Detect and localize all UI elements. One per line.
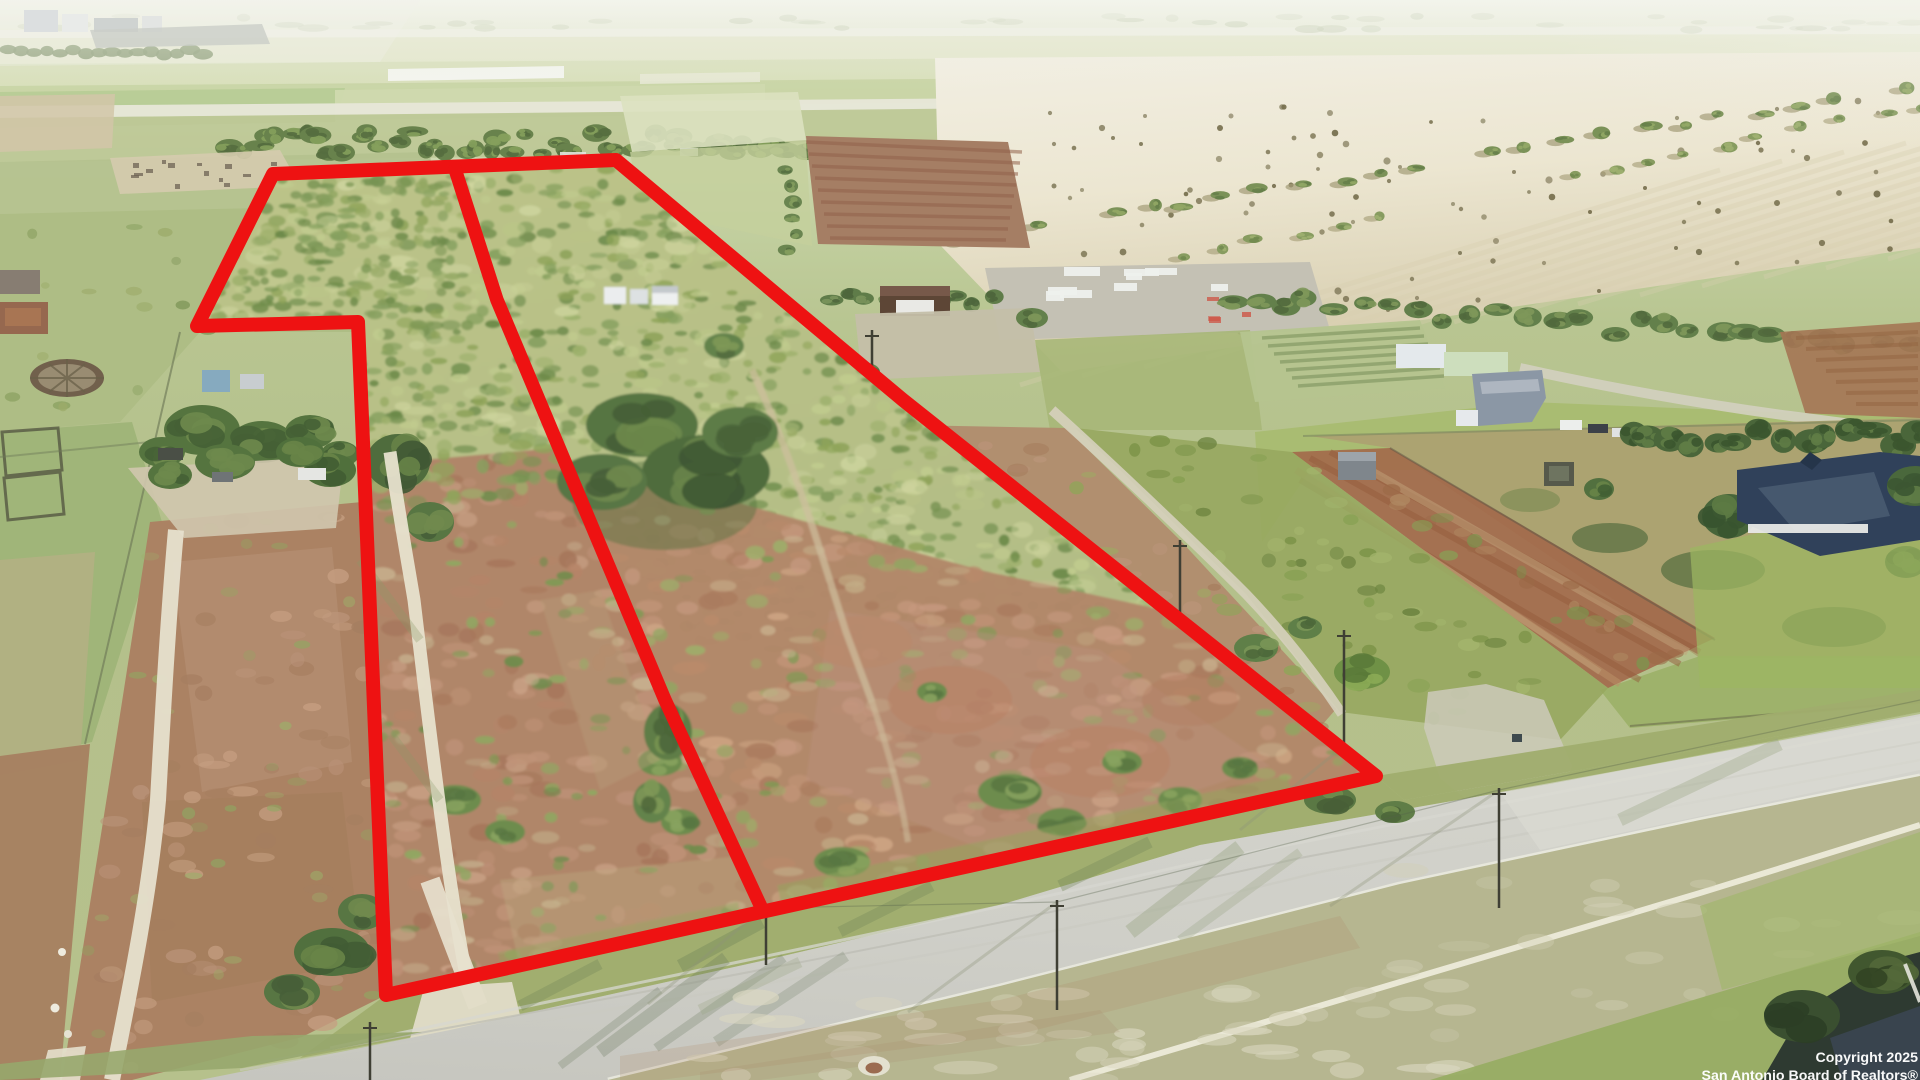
svg-text:San Antonio Board of Realtors®: San Antonio Board of Realtors®	[1702, 1068, 1919, 1080]
svg-text:Copyright 2025: Copyright 2025	[1816, 1050, 1919, 1066]
